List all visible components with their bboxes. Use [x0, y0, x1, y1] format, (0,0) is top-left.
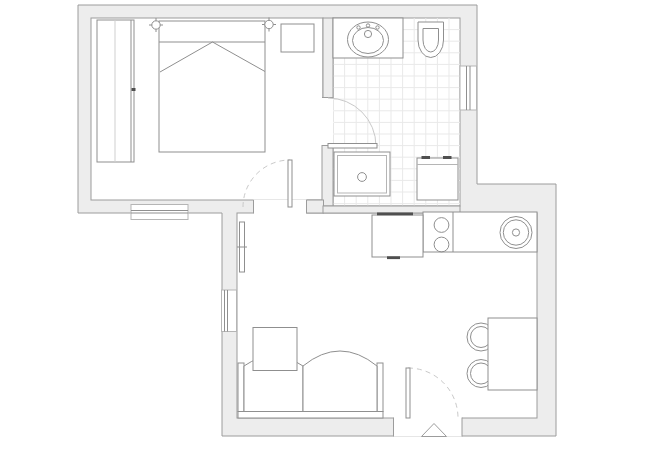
refrigerator-mark [387, 256, 400, 259]
refrigerator-mark [377, 213, 413, 216]
living-room-window [222, 290, 237, 332]
kitchen-sink [500, 217, 532, 249]
coffee-table [253, 328, 297, 371]
wardrobe-handle [132, 88, 136, 91]
sofa-armrest [377, 363, 383, 412]
washing-machine-control [443, 156, 452, 159]
sofa-armrest [238, 363, 244, 412]
bathroom-window [460, 66, 477, 110]
nightstand [281, 24, 314, 52]
sofa-base [238, 412, 383, 419]
floor-plan-svg [0, 0, 650, 450]
bedroom-door-leaf [288, 160, 292, 207]
sofa-cushion [303, 351, 377, 412]
wall-divider-lower [322, 146, 333, 207]
entrance-door-leaf [406, 368, 410, 418]
bedroom-doorway-opening [254, 200, 307, 215]
wall-bathroom-south-left [307, 200, 324, 213]
bathroom-door-leaf [328, 144, 377, 149]
refrigerator [372, 215, 423, 257]
wall-lamp-icon [152, 21, 160, 29]
wall-lamp-icon [265, 20, 273, 28]
washing-machine-control [422, 156, 431, 159]
wall-divider-upper [323, 18, 333, 98]
floor-plan [0, 0, 650, 450]
bed [159, 21, 265, 152]
dining-table [488, 318, 537, 390]
bedroom-window [131, 205, 188, 220]
shower-tray [334, 152, 390, 196]
bathroom-doorway-opening [322, 98, 334, 146]
